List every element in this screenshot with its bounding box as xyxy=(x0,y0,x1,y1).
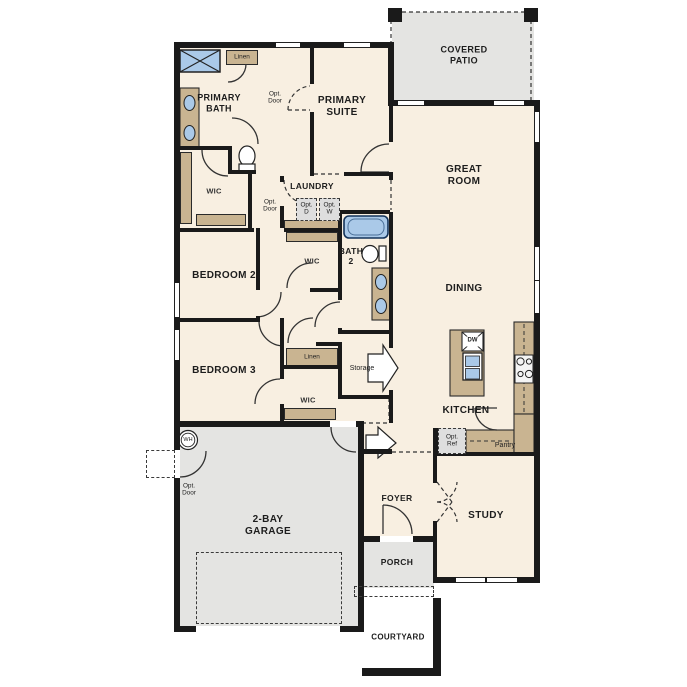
opt-dryer-label: Opt. D xyxy=(300,202,312,217)
water-heater-label: WH xyxy=(183,437,192,443)
wall xyxy=(280,206,284,228)
opt-garage-door-swing xyxy=(146,450,175,478)
porch-edge-dashed xyxy=(354,586,434,597)
patio-slider-window xyxy=(494,100,524,106)
wall xyxy=(389,332,393,348)
wall xyxy=(534,100,540,583)
closet-label-linen-hall: Linen xyxy=(304,353,320,360)
wall xyxy=(356,421,364,427)
room-label-bath2: BATH 2 xyxy=(339,246,363,266)
room-label-bedroom2: BEDROOM 2 xyxy=(192,270,256,282)
window xyxy=(174,330,180,360)
wall xyxy=(284,365,340,369)
wall xyxy=(388,42,394,106)
wall xyxy=(389,390,393,423)
closet-label-pantry: Pantry xyxy=(495,442,515,450)
wall xyxy=(389,212,393,332)
closet-label-storage: Storage xyxy=(350,365,375,373)
wall xyxy=(433,521,437,579)
wall xyxy=(310,112,314,176)
wall xyxy=(280,318,284,379)
courtyard-wall xyxy=(433,598,441,676)
wall xyxy=(338,342,342,397)
wall xyxy=(280,176,284,182)
patio-post xyxy=(524,8,538,22)
window xyxy=(174,283,180,317)
room-label-great-room: GREAT ROOM xyxy=(446,164,482,188)
wall xyxy=(248,174,252,228)
wall xyxy=(389,106,393,142)
garage-door-opening xyxy=(196,626,340,632)
room-label-foyer: FOYER xyxy=(381,493,412,503)
wall xyxy=(174,228,254,232)
opt-door-garage-label: Opt. Door xyxy=(182,483,196,498)
wall xyxy=(256,228,260,290)
wall xyxy=(389,172,393,180)
wall xyxy=(174,318,258,322)
front-door-opening xyxy=(380,536,413,542)
courtyard-wall xyxy=(362,668,441,676)
room-label-courtyard: COURTYARD xyxy=(371,632,425,641)
wic-bed3-rod xyxy=(284,408,336,420)
wall xyxy=(280,404,284,423)
closet-label-wic-primary: WIC xyxy=(206,188,221,197)
wic-primary-rod-left xyxy=(180,152,192,224)
opt-door-bath-label: Opt. Door xyxy=(268,91,282,106)
wic-bed2-rod xyxy=(286,232,338,242)
great-room-dining-kitchen-floor xyxy=(390,106,534,455)
window xyxy=(487,577,517,583)
window xyxy=(344,42,370,48)
room-label-porch: PORCH xyxy=(381,557,413,567)
patio-slider-window xyxy=(398,100,424,106)
closet-label-wic-bed3: WIC xyxy=(300,397,315,406)
wall xyxy=(338,395,392,399)
window xyxy=(456,577,485,583)
room-label-bedroom3: BEDROOM 3 xyxy=(192,365,256,377)
patio-post xyxy=(388,8,402,22)
room-label-primary-bath: PRIMARY BATH xyxy=(197,92,241,113)
opt-washer-label: Opt. W xyxy=(323,202,335,217)
window xyxy=(534,112,540,142)
closet-label-linen-upper: Linen xyxy=(234,53,250,60)
wall xyxy=(174,421,330,427)
room-label-covered-patio: COVERED PATIO xyxy=(441,44,488,65)
wall xyxy=(433,452,437,483)
room-label-primary-suite: PRIMARY SUITE xyxy=(318,95,366,119)
floor-plan: COVERED PATIO PRIMARY SUITE PRIMARY BATH… xyxy=(0,0,687,687)
window xyxy=(276,42,300,48)
foyer-floor xyxy=(364,421,433,536)
wic-primary-rod-bottom xyxy=(196,214,246,226)
closet-label-wic-bed2: WIC xyxy=(304,258,319,267)
garage-door-dashed xyxy=(196,552,342,624)
window xyxy=(534,281,540,313)
room-label-laundry: LAUNDRY xyxy=(290,181,334,191)
room-label-study: STUDY xyxy=(468,510,504,522)
room-label-dining: DINING xyxy=(445,283,482,295)
wall xyxy=(344,172,390,176)
wall xyxy=(284,228,342,232)
wall xyxy=(340,210,390,214)
opt-ref-label: Opt. Ref xyxy=(446,434,458,449)
wall xyxy=(340,330,392,334)
wall xyxy=(310,48,314,84)
opt-door-laundry-label: Opt. Door xyxy=(263,199,277,214)
room-label-garage: 2-BAY GARAGE xyxy=(245,514,291,538)
window xyxy=(534,247,540,280)
wall xyxy=(360,449,392,454)
room-label-kitchen: KITCHEN xyxy=(443,405,490,417)
wall xyxy=(180,146,230,150)
dishwasher-label: DW xyxy=(468,338,478,345)
